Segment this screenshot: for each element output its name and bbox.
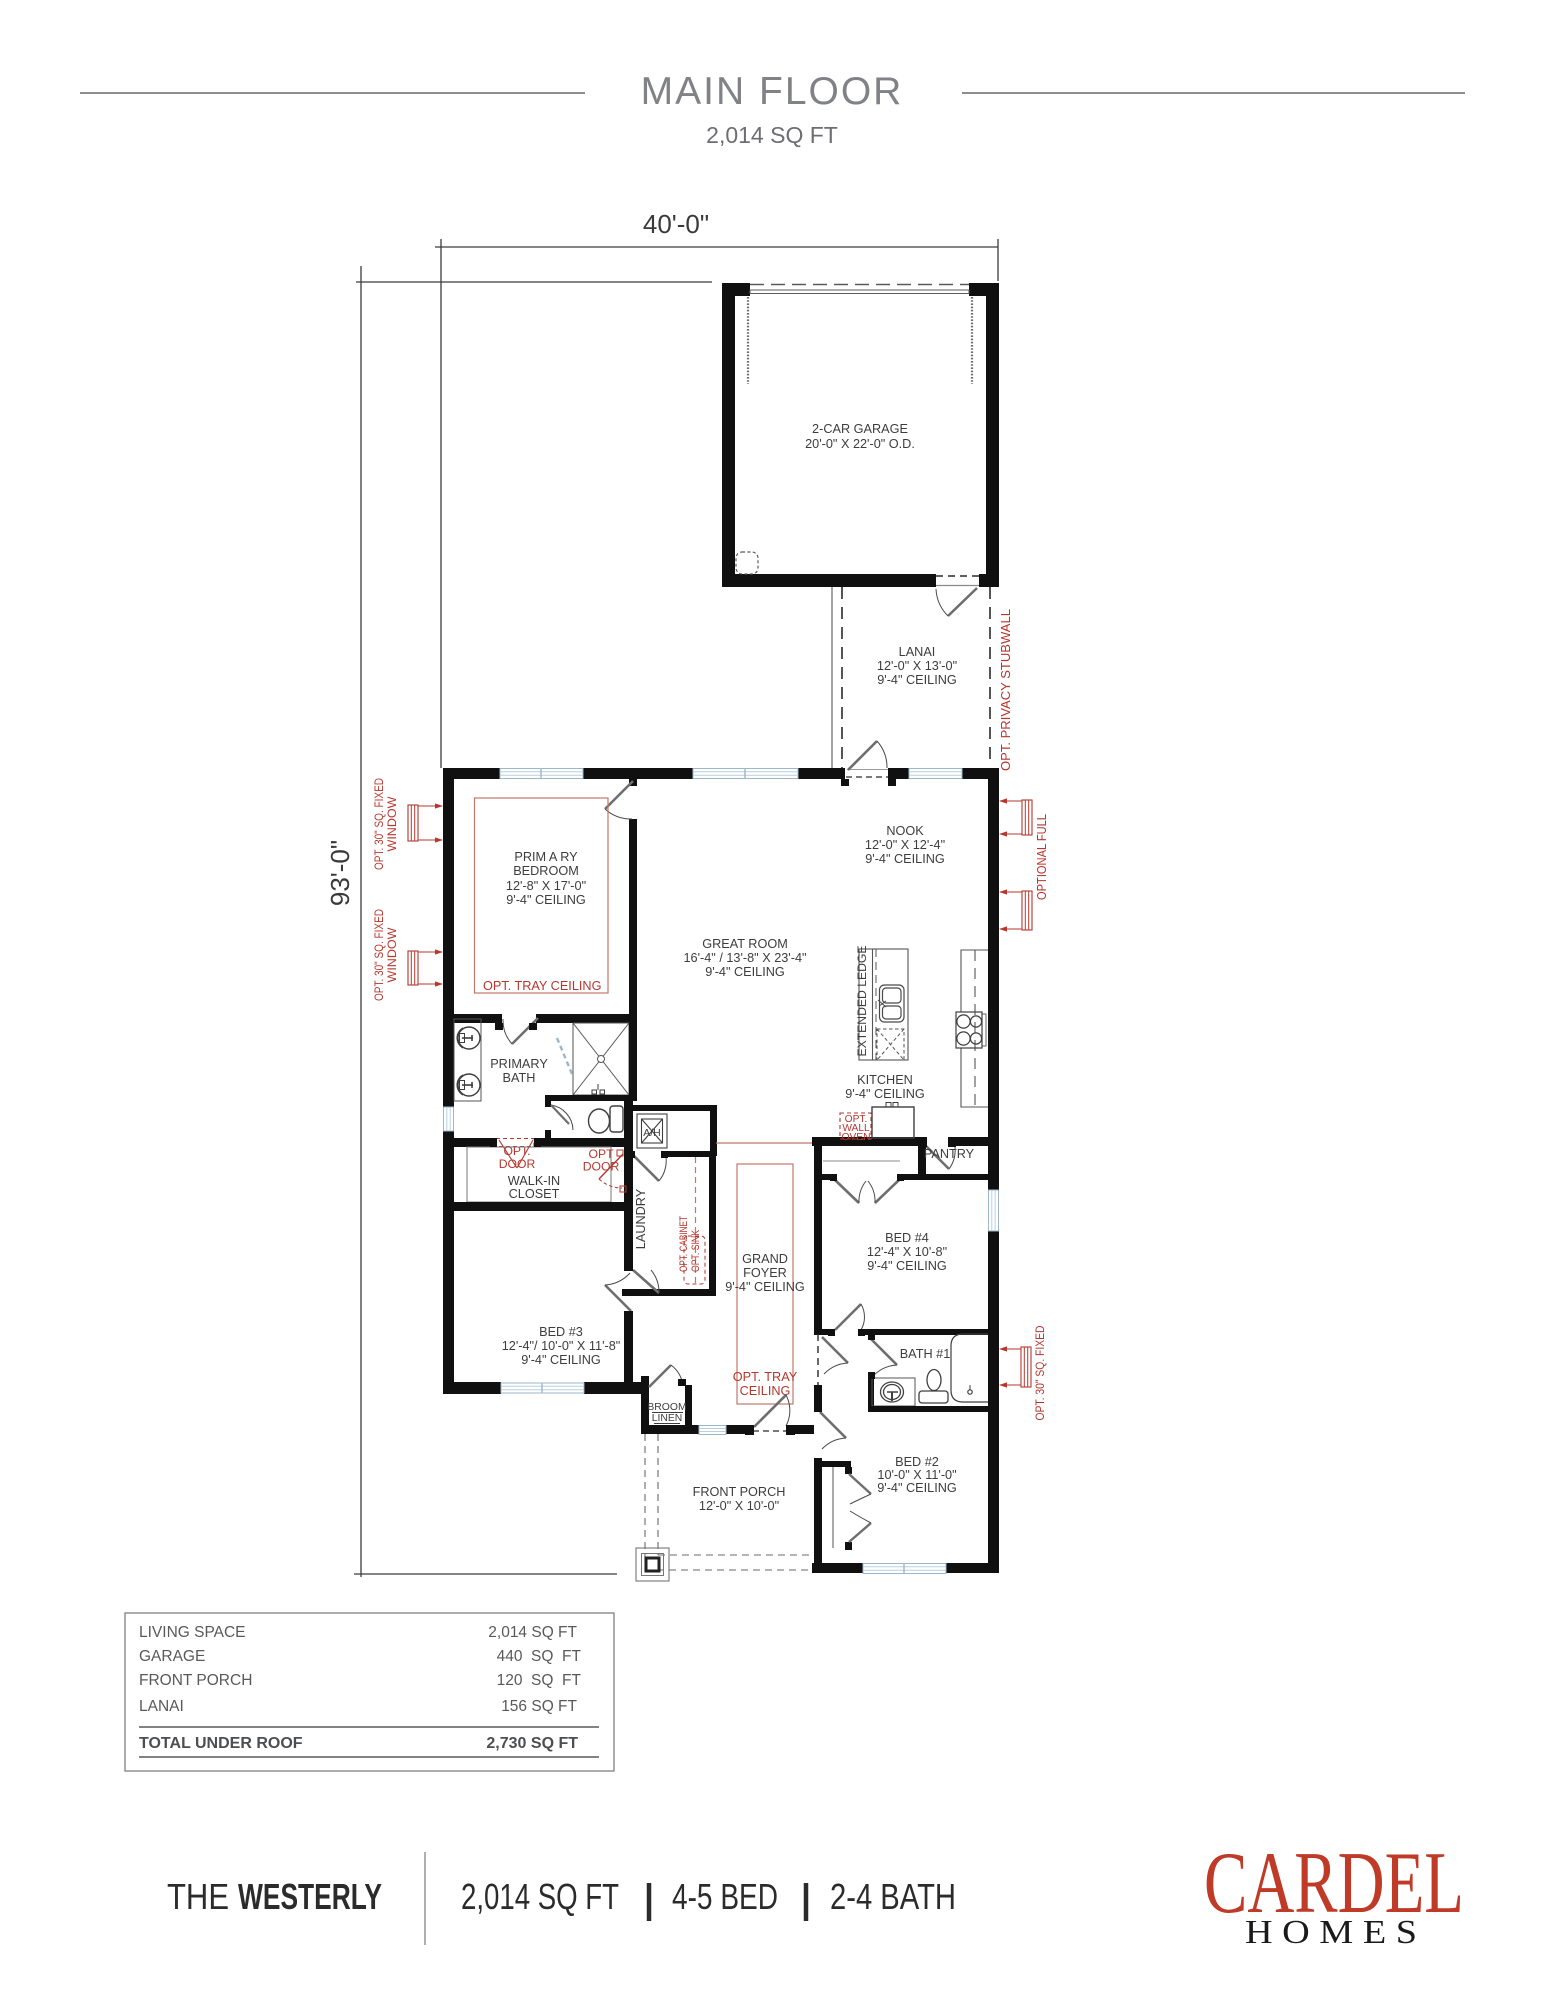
svg-text:2,730 SQ FT: 2,730 SQ FT bbox=[486, 1735, 578, 1752]
svg-text:LIVING SPACE: LIVING SPACE bbox=[139, 1624, 246, 1641]
svg-text:GREAT ROOM: GREAT ROOM bbox=[702, 937, 788, 951]
svg-text:BED #4: BED #4 bbox=[885, 1231, 929, 1245]
svg-text:LINEN: LINEN bbox=[652, 1413, 683, 1424]
svg-text:9'-4" CEILING: 9'-4" CEILING bbox=[865, 852, 945, 866]
svg-text:LANAI: LANAI bbox=[899, 645, 936, 659]
svg-text:9'-4" CEILING: 9'-4" CEILING bbox=[845, 1087, 925, 1101]
svg-text:12'-8" X 17'-0": 12'-8" X 17'-0" bbox=[506, 879, 586, 893]
svg-text:12'-0" X 10'-0": 12'-0" X 10'-0" bbox=[699, 1499, 779, 1513]
svg-text:120 SQ FT: 120 SQ FT bbox=[497, 1672, 582, 1689]
svg-text:WALK-IN: WALK-IN bbox=[508, 1174, 560, 1188]
svg-text:BED #3: BED #3 bbox=[539, 1325, 583, 1339]
svg-text:40'-0": 40'-0" bbox=[643, 209, 709, 239]
svg-text:PANTRY: PANTRY bbox=[924, 1147, 975, 1161]
svg-text:2,014 SQ FT: 2,014 SQ FT bbox=[488, 1624, 577, 1641]
svg-text:9'-4" CEILING: 9'-4" CEILING bbox=[877, 1481, 957, 1495]
svg-text:9'-4" CEILING: 9'-4" CEILING bbox=[877, 673, 957, 687]
svg-text:DOOR: DOOR bbox=[583, 1160, 620, 1174]
svg-text:WESTERLY: WESTERLY bbox=[238, 1876, 382, 1917]
svg-text:FRONT PORCH: FRONT PORCH bbox=[139, 1672, 252, 1689]
svg-text:12'-4" X 10'-8": 12'-4" X 10'-8" bbox=[867, 1245, 947, 1259]
svg-text:156 SQ FT: 156 SQ FT bbox=[501, 1698, 577, 1715]
svg-text:GARAGE: GARAGE bbox=[139, 1648, 205, 1665]
svg-text:A/H: A/H bbox=[643, 1127, 661, 1139]
svg-text:OPT. TRAY: OPT. TRAY bbox=[733, 1370, 798, 1384]
svg-text:9'-4" CEILING: 9'-4" CEILING bbox=[867, 1259, 947, 1273]
svg-text:2,014 SQ FT: 2,014 SQ FT bbox=[461, 1876, 619, 1917]
svg-text:CEILING: CEILING bbox=[740, 1384, 791, 1398]
svg-text:BATH: BATH bbox=[503, 1071, 536, 1085]
svg-text:10'-0" X 11'-0": 10'-0" X 11'-0" bbox=[877, 1468, 956, 1482]
svg-text:LAUNDRY: LAUNDRY bbox=[634, 1188, 648, 1249]
svg-text:2,014 SQ FT: 2,014 SQ FT bbox=[706, 122, 838, 148]
svg-text:WINDOW: WINDOW bbox=[385, 927, 399, 983]
svg-text:9'-4" CEILING: 9'-4" CEILING bbox=[725, 1280, 805, 1294]
svg-text:THE: THE bbox=[167, 1876, 229, 1917]
svg-text:FOYER: FOYER bbox=[743, 1266, 787, 1280]
svg-text:EXTENDED LEDGE: EXTENDED LEDGE bbox=[855, 945, 869, 1056]
svg-text:12'-4"/ 10'-0" X 11'-8": 12'-4"/ 10'-0" X 11'-8" bbox=[502, 1339, 621, 1353]
svg-text:MAIN FLOOR: MAIN FLOOR bbox=[641, 70, 904, 113]
svg-text:PRIM A RY: PRIM A RY bbox=[514, 850, 578, 864]
svg-text:2-CAR GARAGE: 2-CAR GARAGE bbox=[812, 422, 908, 436]
svg-text:PRIMARY: PRIMARY bbox=[490, 1057, 548, 1071]
svg-text:OPT. TRAY CEILING: OPT. TRAY CEILING bbox=[483, 979, 601, 993]
svg-text:16'-4" / 13'-8" X 23'-4": 16'-4" / 13'-8" X 23'-4" bbox=[683, 951, 806, 965]
svg-text:BEDROOM: BEDROOM bbox=[513, 864, 579, 878]
svg-text:OPTIONAL FULL: OPTIONAL FULL bbox=[1035, 814, 1049, 900]
svg-text:BED #2: BED #2 bbox=[895, 1455, 939, 1469]
svg-text:BROOM: BROOM bbox=[647, 1402, 686, 1413]
svg-text:12'-0" X 12'-4": 12'-0" X 12'-4" bbox=[865, 838, 945, 852]
svg-text:OPT. 30" SQ. FIXED: OPT. 30" SQ. FIXED bbox=[1033, 1325, 1047, 1420]
svg-text:20'-0" X 22'-0" O.D.: 20'-0" X 22'-0" O.D. bbox=[805, 437, 915, 451]
svg-text:LANAI: LANAI bbox=[139, 1698, 184, 1715]
svg-text:H O M E S: H O M E S bbox=[1245, 1914, 1417, 1951]
svg-text:OPT. 30" SQ. FIXED: OPT. 30" SQ. FIXED bbox=[372, 778, 386, 870]
svg-text:OPT. PRIVACY STUBWALL: OPT. PRIVACY STUBWALL bbox=[999, 609, 1013, 771]
svg-text:9'-4" CEILING: 9'-4" CEILING bbox=[506, 893, 586, 907]
svg-text:TOTAL UNDER ROOF: TOTAL UNDER ROOF bbox=[139, 1735, 303, 1752]
svg-text:GRAND: GRAND bbox=[742, 1252, 788, 1266]
svg-text:WINDOW: WINDOW bbox=[385, 796, 399, 852]
svg-text:FRONT PORCH: FRONT PORCH bbox=[693, 1485, 786, 1499]
svg-text:BATH #1: BATH #1 bbox=[900, 1347, 951, 1361]
svg-text:93'-0": 93'-0" bbox=[325, 840, 355, 906]
svg-text:OVEN: OVEN bbox=[842, 1132, 871, 1143]
svg-text:OPT. SINK: OPT. SINK bbox=[690, 1229, 702, 1272]
svg-text:CLOSET: CLOSET bbox=[509, 1187, 560, 1201]
svg-text:DOOR: DOOR bbox=[499, 1157, 536, 1171]
svg-text:OPT.: OPT. bbox=[503, 1144, 530, 1158]
svg-text:9'-4" CEILING: 9'-4" CEILING bbox=[521, 1353, 601, 1367]
svg-text:NOOK: NOOK bbox=[886, 824, 924, 838]
svg-text:4-5 BED: 4-5 BED bbox=[672, 1876, 778, 1917]
svg-text:12'-0" X 13'-0": 12'-0" X 13'-0" bbox=[877, 659, 957, 673]
svg-text:9'-4" CEILING: 9'-4" CEILING bbox=[705, 965, 785, 979]
svg-text:OPT. 30" SQ. FIXED: OPT. 30" SQ. FIXED bbox=[372, 909, 386, 1001]
svg-text:440 SQ FT: 440 SQ FT bbox=[497, 1648, 582, 1665]
svg-text:KITCHEN: KITCHEN bbox=[857, 1073, 913, 1087]
svg-text:2-4 BATH: 2-4 BATH bbox=[830, 1876, 956, 1917]
